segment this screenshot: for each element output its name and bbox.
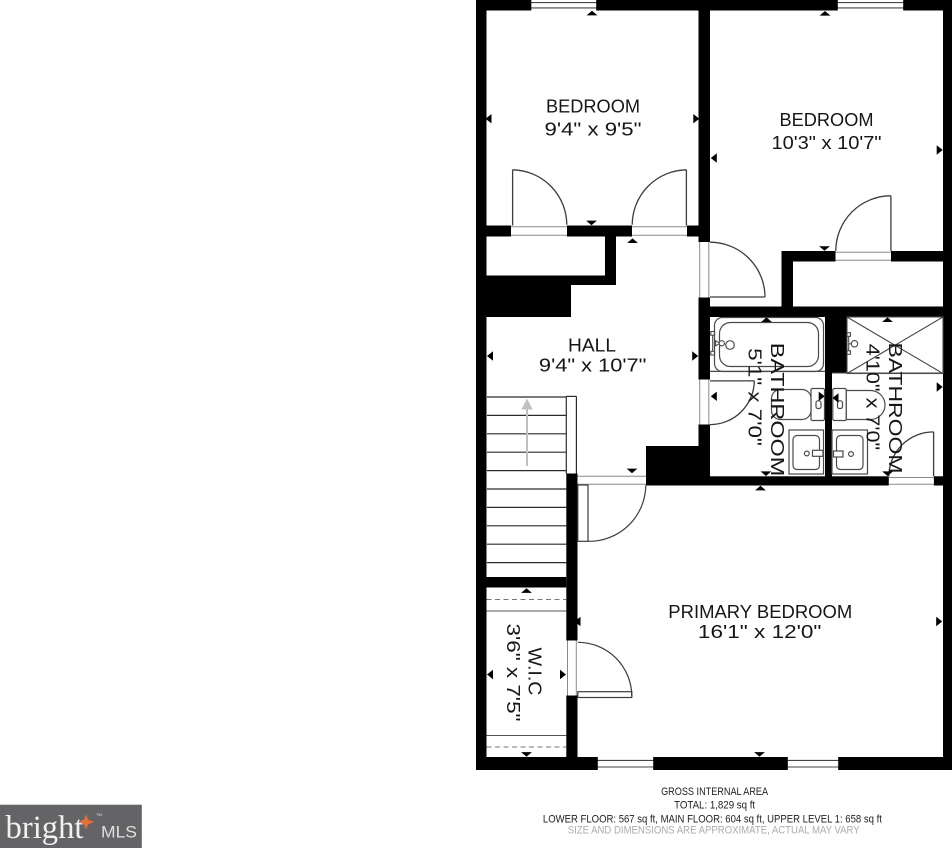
svg-text:BEDROOM: BEDROOM bbox=[780, 109, 874, 130]
svg-text:SIZE AND DIMENSIONS ARE APPROX: SIZE AND DIMENSIONS ARE APPROXIMATE, ACT… bbox=[568, 825, 860, 837]
svg-text:PRIMARY BEDROOM: PRIMARY BEDROOM bbox=[668, 601, 852, 622]
svg-text:9'4" x 9'5": 9'4" x 9'5" bbox=[545, 119, 642, 140]
svg-text:BATHROOM: BATHROOM bbox=[767, 343, 788, 477]
svg-text:LOWER FLOOR: 567 sq ft, MAIN F: LOWER FLOOR: 567 sq ft, MAIN FLOOR: 604 … bbox=[543, 813, 883, 825]
svg-text:10'3" x 10'7": 10'3" x 10'7" bbox=[772, 132, 882, 153]
svg-text:BATHROOM: BATHROOM bbox=[885, 343, 906, 474]
svg-text:16'1" x 12'0": 16'1" x 12'0" bbox=[698, 621, 822, 642]
svg-text:GROSS INTERNAL AREA: GROSS INTERNAL AREA bbox=[661, 786, 768, 798]
svg-text:BEDROOM: BEDROOM bbox=[546, 96, 640, 117]
svg-text:5'1" x 7'0": 5'1" x 7'0" bbox=[745, 348, 766, 446]
svg-text:bright: bright bbox=[6, 810, 84, 846]
svg-text:HALL: HALL bbox=[568, 335, 616, 356]
svg-text:™: ™ bbox=[96, 813, 103, 820]
svg-text:TOTAL: 1,829 sq ft: TOTAL: 1,829 sq ft bbox=[674, 800, 756, 812]
svg-text:4'10" x 7'0": 4'10" x 7'0" bbox=[863, 344, 884, 451]
svg-text:MLS: MLS bbox=[101, 823, 137, 842]
svg-text:9'4" x 10'7": 9'4" x 10'7" bbox=[539, 355, 647, 376]
svg-text:3'6" x 7'5": 3'6" x 7'5" bbox=[503, 624, 524, 722]
svg-text:W.I.C: W.I.C bbox=[525, 648, 546, 696]
